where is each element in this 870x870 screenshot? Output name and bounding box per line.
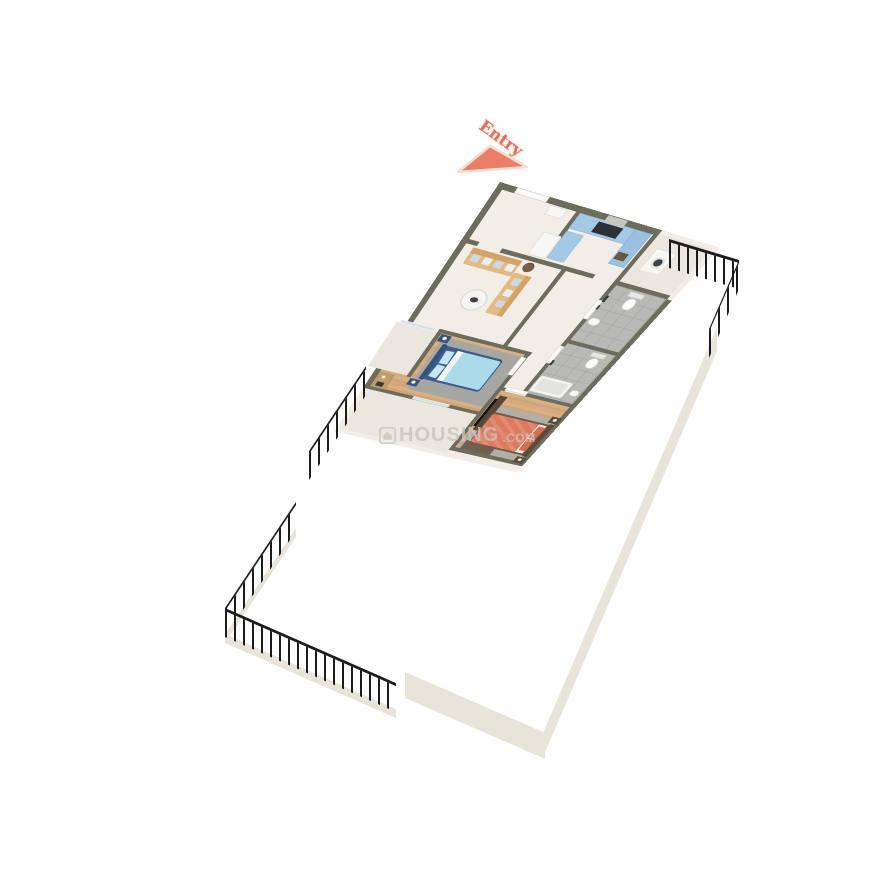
washer-door — [648, 256, 668, 269]
exterior-wall-face — [405, 672, 545, 759]
sofa-pillow — [481, 257, 494, 266]
balcony-railing-large-front — [225, 608, 396, 712]
house-icon — [379, 427, 396, 444]
entry-arrow-icon — [452, 140, 532, 188]
watermark: HOUSING .COM — [379, 424, 536, 447]
bathtub-basin — [533, 378, 569, 395]
watermark-brand: HOUSING — [399, 424, 499, 447]
floorplan-stage: Entry HOUSING .COM — [0, 0, 870, 870]
watermark-tld: .COM — [502, 431, 535, 445]
books — [375, 381, 385, 387]
sofa-pillow — [504, 263, 517, 272]
sofa-pillow — [492, 260, 505, 269]
sofa-pillow — [469, 254, 482, 263]
shelf-lamp — [380, 375, 386, 379]
coffee-table-decor — [469, 296, 480, 303]
